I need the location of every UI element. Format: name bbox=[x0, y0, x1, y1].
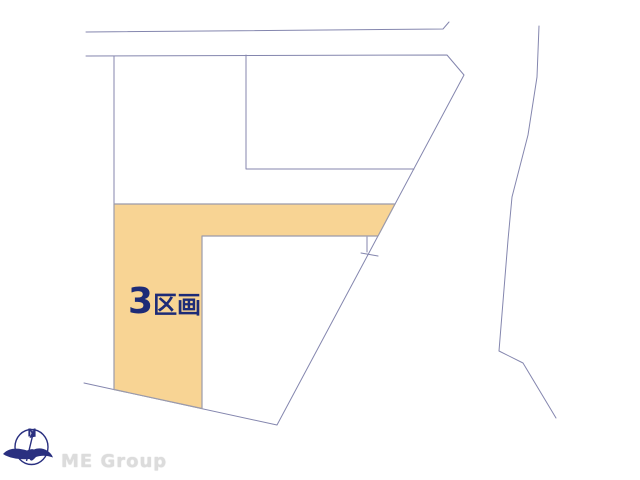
compass-north-indicator: N bbox=[3, 427, 53, 465]
setback-mark-line-2 bbox=[361, 253, 378, 256]
parcel-number: 3 bbox=[128, 281, 153, 322]
parcel-unit: 区画 bbox=[153, 291, 201, 319]
road-right-line bbox=[499, 26, 556, 418]
plot-map: N 3区画 ME Group bbox=[0, 0, 640, 480]
parcel-count-label: 3区画 bbox=[128, 284, 201, 320]
divider-upper-parcel-line bbox=[246, 55, 414, 169]
plot-map-canvas: N bbox=[0, 0, 640, 480]
bird-logo-icon bbox=[3, 448, 53, 460]
north-label: N bbox=[27, 427, 36, 440]
brand-watermark: ME Group bbox=[61, 451, 167, 472]
road-top-line bbox=[86, 22, 449, 32]
